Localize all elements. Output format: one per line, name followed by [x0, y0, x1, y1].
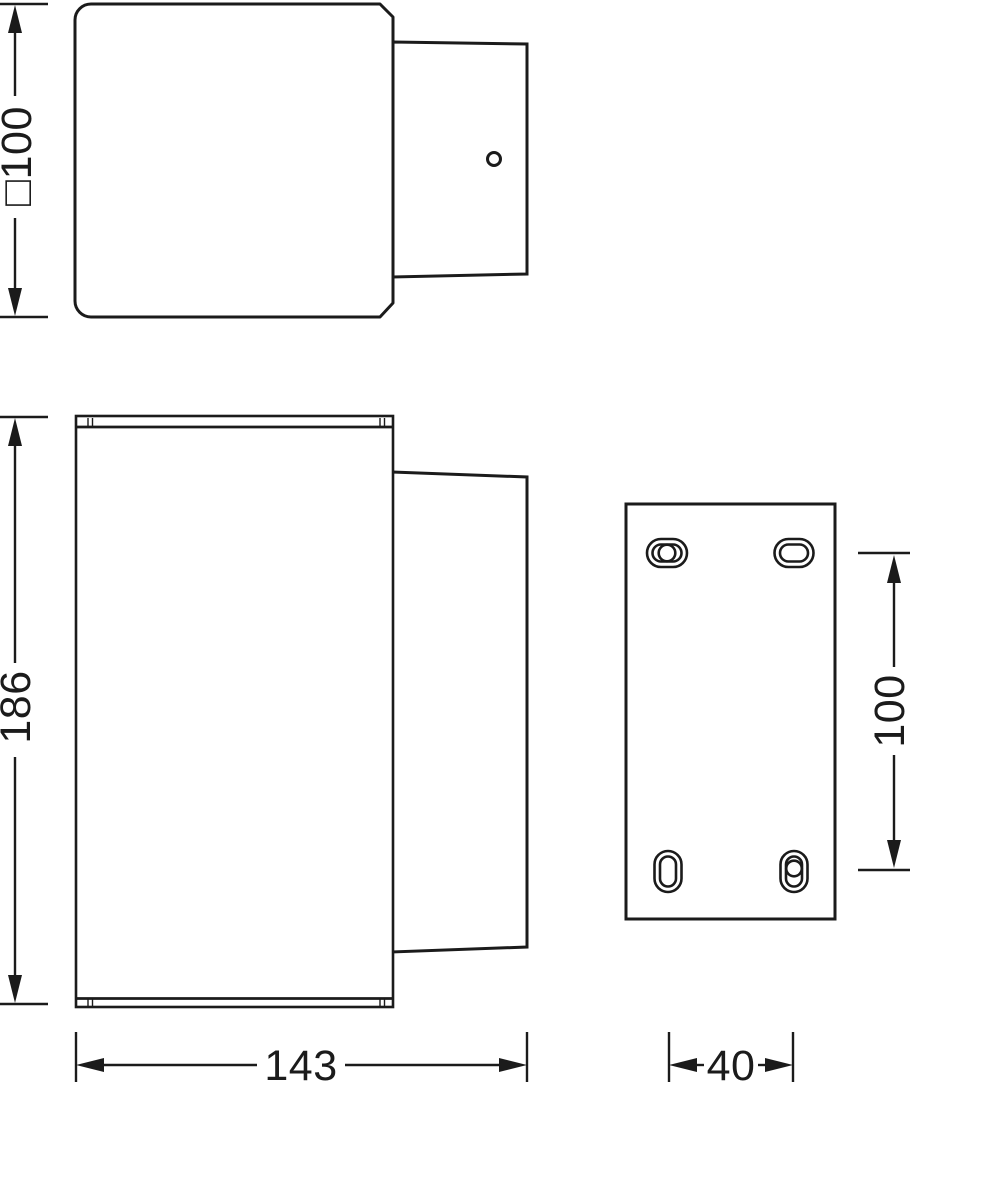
arrowhead-down: [8, 975, 22, 1003]
arrowhead-up: [8, 418, 22, 446]
arrowhead-left: [76, 1058, 104, 1072]
dimension-value: 40: [707, 1042, 756, 1090]
dimension-plate-hole-spacing-horizontal: 40: [669, 1032, 793, 1090]
dimension-value: 100: [866, 674, 914, 747]
luminaire-body-front-view: [76, 416, 393, 1007]
arrowhead-left: [669, 1058, 697, 1072]
arrowhead-right: [499, 1058, 527, 1072]
arrowhead-down: [887, 840, 901, 868]
drawing-canvas: □100 186 143 100 40: [0, 0, 997, 1200]
dimension-value: □100: [0, 106, 41, 206]
dimension-value: 143: [264, 1042, 337, 1090]
arrowhead-up: [887, 555, 901, 583]
dimension-drawing-page: □100 186 143 100 40: [0, 0, 997, 1200]
arrowhead-up: [8, 5, 22, 33]
dimension-width: 143: [76, 1032, 527, 1090]
front-view: [76, 416, 527, 1007]
dimension-plate-hole-spacing-vertical: 100: [858, 553, 914, 870]
dimension-value: 186: [0, 670, 40, 743]
wall-bracket-top-view: [393, 42, 527, 277]
top-view: [75, 4, 527, 317]
wall-bracket-front-view: [392, 472, 527, 952]
arrowhead-down: [8, 288, 22, 316]
luminaire-body-top-view: [75, 4, 393, 317]
dimension-top-size: □100: [0, 4, 48, 317]
dimension-height: 186: [0, 417, 48, 1004]
mounting-plate-view: [626, 504, 835, 919]
arrowhead-right: [765, 1058, 793, 1072]
